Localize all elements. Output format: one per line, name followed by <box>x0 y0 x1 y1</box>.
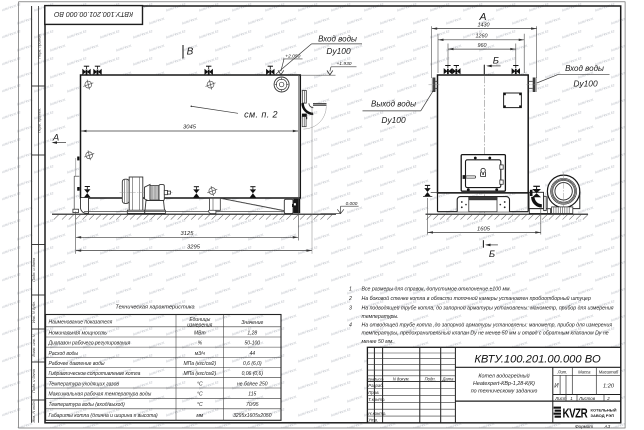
svg-text:3: 3 <box>349 306 352 312</box>
svg-text:Расход воды: Расход воды <box>49 351 79 357</box>
svg-text:А3: А3 <box>604 424 611 429</box>
svg-text:И: И <box>554 384 559 390</box>
svg-text:+1.930: +1.930 <box>336 61 351 67</box>
svg-text:3295: 3295 <box>187 245 201 251</box>
svg-text:°С: °С <box>197 392 203 398</box>
svg-text:Рабочее давление воды: Рабочее давление воды <box>49 361 105 367</box>
svg-text:МПа (кгс/см2): МПа (кгс/см2) <box>183 371 216 377</box>
svg-text:Dy100: Dy100 <box>573 78 598 88</box>
svg-text:1605: 1605 <box>477 226 491 232</box>
svg-text:На отводящей трубе котла ,до з: На отводящей трубе котла ,до запорной ар… <box>362 321 613 328</box>
svg-text:Утв.: Утв. <box>368 418 378 423</box>
svg-text:115: 115 <box>248 392 256 398</box>
svg-text:Вход воды: Вход воды <box>565 64 604 73</box>
svg-text:3045: 3045 <box>183 125 197 131</box>
svg-text:Разраб.: Разраб. <box>368 383 384 388</box>
svg-text:Н.контр.: Н.контр. <box>368 411 386 416</box>
svg-text:0,6 (6,0): 0,6 (6,0) <box>243 361 262 367</box>
svg-text:1: 1 <box>349 286 352 292</box>
svg-text:2: 2 <box>348 296 352 302</box>
svg-text:Heatexpert-КВр-1,28-К(К): Heatexpert-КВр-1,28-К(К) <box>473 381 535 387</box>
svg-text:Техническая характеристика: Техническая характеристика <box>115 305 194 311</box>
svg-text:На боковой стенке котла в обла: На боковой стенке котла в области топочн… <box>362 295 591 302</box>
svg-text:МПа (кгс/см2): МПа (кгс/см2) <box>183 361 216 367</box>
svg-text:по техническому заданию: по техническому заданию <box>471 388 538 394</box>
svg-text:1,28: 1,28 <box>247 330 257 336</box>
svg-text:1430: 1430 <box>478 22 490 28</box>
svg-text:Подп. и дата: Подп. и дата <box>32 369 36 393</box>
svg-text:А: А <box>478 11 486 23</box>
svg-text:Масса: Масса <box>578 369 591 374</box>
svg-text:Наименование показателя: Наименование показателя <box>49 319 113 325</box>
svg-text:Номинальная мощность: Номинальная мощность <box>49 330 108 336</box>
svg-text:0.000: 0.000 <box>346 201 358 206</box>
svg-text:Масштаб: Масштаб <box>599 369 619 374</box>
svg-text:Инв. N дубл.: Инв. N дубл. <box>32 301 36 323</box>
svg-text:Перв. примен.: Перв. примен. <box>37 108 41 133</box>
svg-text:см. п. 2: см. п. 2 <box>244 110 278 120</box>
svg-text:1260: 1260 <box>476 34 488 40</box>
svg-text:°С: °С <box>197 402 203 408</box>
svg-text:Диапазон рабочего регулировани: Диапазон рабочего регулирования <box>48 341 131 347</box>
svg-text:КОТЕЛЬНЫЙ: КОТЕЛЬНЫЙ <box>591 407 617 412</box>
svg-text:Взам. инв. N: Взам. инв. N <box>32 334 36 356</box>
svg-text:Габариты котла (длинна и ширин: Габариты котла (длинна и ширина х высота… <box>49 413 159 419</box>
svg-text:3295х1605х2050: 3295х1605х2050 <box>233 413 272 419</box>
svg-text:70/95: 70/95 <box>246 402 259 408</box>
svg-text:Лит.: Лит. <box>557 369 568 374</box>
svg-text:Котел водогрейный: Котел водогрейный <box>478 372 529 379</box>
svg-text:44: 44 <box>250 351 256 357</box>
svg-text:Пров.: Пров. <box>368 390 379 395</box>
svg-text:измерения: измерения <box>187 322 212 328</box>
svg-text:м3/ч: м3/ч <box>195 351 206 357</box>
svg-text:Подп. и дата: Подп. и дата <box>32 258 36 282</box>
svg-text:50-100: 50-100 <box>245 341 261 347</box>
svg-text:Дата: Дата <box>441 376 454 381</box>
svg-text:В: В <box>187 47 194 58</box>
svg-text:Подп.: Подп. <box>425 376 436 381</box>
svg-text:Формат: Формат <box>575 424 593 429</box>
svg-text:°С: °С <box>197 381 203 387</box>
svg-text:Лист: Лист <box>554 396 567 401</box>
svg-text:Температура воды (вход/выход): Температура воды (вход/выход) <box>49 402 126 408</box>
svg-text:3125: 3125 <box>181 231 195 237</box>
svg-text:Температура уходящих газов: Температура уходящих газов <box>49 381 120 387</box>
svg-text:На подводящей трубе котла, до: На подводящей трубе котла, до запорной а… <box>362 305 614 312</box>
svg-text:KVZR: KVZR <box>562 408 587 421</box>
svg-text:Инв. N подл.: Инв. N подл. <box>32 400 36 422</box>
svg-text:температуры, предохранительный: температуры, предохранительный клапан Dу… <box>362 330 609 337</box>
svg-text:%: % <box>198 341 203 347</box>
svg-text:менее 50 мм.: менее 50 мм. <box>362 339 394 345</box>
svg-text:температуры.: температуры. <box>362 314 399 320</box>
svg-text:Б: Б <box>489 249 495 260</box>
svg-text:N докум.: N докум. <box>393 376 410 381</box>
svg-text:МВт: МВт <box>194 330 206 336</box>
svg-text:4: 4 <box>349 322 352 328</box>
svg-text:Гидравлическое сопротивление к: Гидравлическое сопротивление котла <box>49 371 141 377</box>
svg-text:КВТУ.100.201.00.000 ВО: КВТУ.100.201.00.000 ВО <box>54 10 134 17</box>
svg-text:Лист: Лист <box>372 376 384 381</box>
svg-text:Листов: Листов <box>578 396 596 401</box>
svg-text:0,06 (0,6): 0,06 (0,6) <box>242 371 264 377</box>
svg-text:1:20: 1:20 <box>603 383 615 389</box>
svg-text:Максимальная рабочая температу: Максимальная рабочая температура воды <box>49 392 152 398</box>
svg-text:не более 250: не более 250 <box>237 381 268 387</box>
svg-text:Все размеры для справок, допус: Все размеры для справок, допустимое откл… <box>362 286 512 292</box>
svg-text:Вход воды: Вход воды <box>318 35 357 44</box>
svg-text:2: 2 <box>606 396 610 401</box>
svg-text:960: 960 <box>478 43 487 49</box>
svg-text:мм: мм <box>196 413 203 419</box>
svg-text:Dy100: Dy100 <box>326 46 351 56</box>
svg-text:Выход воды: Выход воды <box>371 99 416 108</box>
svg-text:Б: Б <box>493 56 499 67</box>
svg-text:Т.контр.: Т.контр. <box>368 397 385 402</box>
svg-text:КВТУ.100.201.00.000 ВО: КВТУ.100.201.00.000 ВО <box>474 354 601 366</box>
svg-text:Значение: Значение <box>241 320 263 326</box>
svg-text:ЗАВОД РЭП: ЗАВОД РЭП <box>591 413 615 418</box>
svg-text:Перв. примен.: Перв. примен. <box>37 33 41 58</box>
svg-text:Dy100: Dy100 <box>381 115 406 125</box>
